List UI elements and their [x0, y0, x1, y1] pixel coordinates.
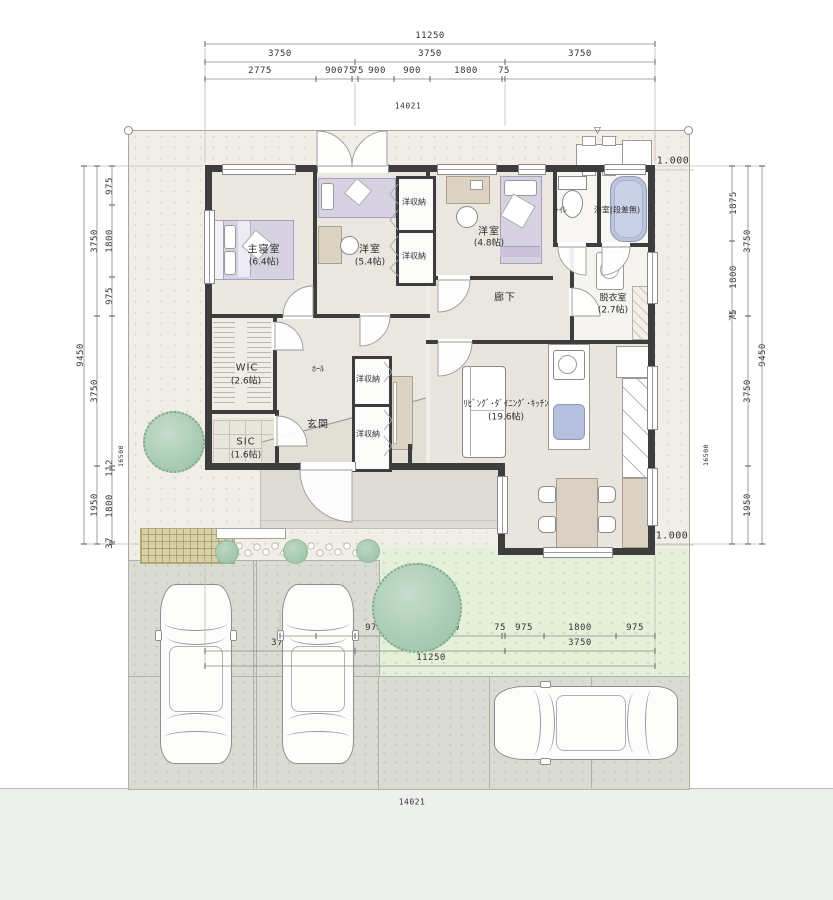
- parked-car: [282, 584, 354, 764]
- car-trunk-line: [645, 690, 658, 756]
- room-label-bath: 浴室(段差無): [594, 205, 640, 216]
- sliding-door-garden: [543, 547, 613, 558]
- door-gap: [558, 242, 586, 248]
- dim-right-upper: 1800: [729, 265, 739, 289]
- dim-right-mid: 1950: [743, 493, 753, 517]
- car-roof: [291, 646, 345, 712]
- dim-left-mid: 3750: [90, 229, 100, 253]
- dim-top-third: 3750: [418, 49, 442, 59]
- room-label-hall: ﾎｰﾙ: [312, 364, 324, 375]
- dim-top-detail: 900: [368, 66, 386, 76]
- door-gap: [569, 288, 575, 316]
- window-bath-top: [604, 164, 646, 175]
- parking-stall-line: [489, 676, 490, 788]
- room-label-closet: 洋収納: [356, 429, 380, 440]
- room-size-sic: (1.6帖): [231, 448, 261, 461]
- room-size-washroom: (2.7帖): [598, 303, 628, 316]
- car-mirror: [230, 630, 237, 641]
- room-label-closet: 洋収納: [356, 374, 380, 385]
- room-size-wic: (2.6帖): [231, 374, 261, 387]
- window-west48-top: [437, 164, 497, 175]
- dim-right-site: 16500: [702, 444, 710, 466]
- door-gap: [438, 339, 472, 345]
- pillow: [224, 251, 236, 275]
- dim-left-upper: 975: [105, 287, 115, 305]
- door-gap: [602, 242, 630, 248]
- car-rear-window: [627, 693, 642, 753]
- room-label-toilet: ﾄｲﾚ: [555, 205, 567, 216]
- door-gap: [360, 313, 390, 319]
- dim-left-mid: 1950: [90, 493, 100, 517]
- tree: [143, 411, 205, 473]
- door-gap-terrace: [317, 164, 389, 173]
- dining-chair: [538, 486, 556, 503]
- room-label-master: 主寝室: [248, 241, 281, 256]
- wic-hanger-rack: [213, 322, 235, 406]
- floor-corridor-nook: [553, 247, 570, 340]
- parked-car-horizontal-wrap: [494, 686, 678, 760]
- desk-item: [470, 180, 483, 190]
- shoe-cabinet-handle: [393, 382, 397, 444]
- washbasin-bowl: [600, 260, 619, 279]
- car-mirror: [352, 630, 359, 641]
- door-gap: [438, 275, 470, 281]
- car-roof: [556, 695, 626, 751]
- dim-right-total: 9450: [758, 343, 768, 367]
- dim-top-detail: 1800: [454, 66, 478, 76]
- dining-chair: [598, 516, 616, 533]
- window-master-top: [222, 164, 296, 175]
- dim-top-total: 11250: [415, 31, 445, 41]
- kitchen-stove: [553, 404, 585, 440]
- door-gap: [283, 313, 313, 319]
- dim-left-lower: 37: [105, 537, 115, 549]
- dim-left-upper: 1800: [105, 229, 115, 253]
- window-master-left: [204, 210, 215, 284]
- window-ldk-west: [497, 476, 508, 534]
- window-ldk-right: [647, 366, 658, 430]
- car-roof: [169, 646, 223, 712]
- car-windshield: [538, 693, 555, 753]
- bush: [356, 539, 380, 563]
- parked-car: [160, 584, 232, 764]
- room-label-wic: WIC: [236, 363, 259, 374]
- dining-chair: [538, 516, 556, 533]
- door-gap: [274, 416, 280, 446]
- room-size-west48: (4.8帖): [474, 236, 504, 249]
- toilet-tank: [558, 176, 587, 190]
- dim-left-mid: 3750: [90, 379, 100, 403]
- porch-step-edge: [260, 520, 498, 521]
- entry-door-gap: [300, 462, 356, 471]
- level-label-bottom: 1.000: [656, 531, 689, 542]
- site-corner-marker: [124, 126, 133, 135]
- wall-bedroom-divider: [313, 172, 317, 314]
- outdoor-chair: [582, 136, 596, 146]
- car-rear-window: [167, 713, 225, 728]
- room-size-ldk: (19.6帖): [488, 410, 524, 423]
- dim-bottom-total: 11250: [416, 653, 446, 663]
- dim-top-detail: 75: [352, 66, 364, 76]
- room-size-master: (6.4帖): [249, 255, 279, 268]
- car-mirror: [277, 630, 284, 641]
- dim-left-lower: 1800: [105, 494, 115, 518]
- car-trunk-line: [286, 731, 350, 744]
- garden-bench: [216, 528, 286, 539]
- car-mirror: [155, 630, 162, 641]
- room-label-closet: 洋収納: [402, 197, 426, 208]
- sofa-backrest: [462, 366, 471, 456]
- dining-table: [556, 478, 598, 548]
- dim-top-third: 3750: [568, 49, 592, 59]
- bush: [283, 539, 308, 564]
- bed-foot-band: [500, 246, 540, 257]
- dim-top-third: 3750: [268, 49, 292, 59]
- dim-top-detail: 900: [403, 66, 421, 76]
- dim-right-upper: 75: [729, 309, 739, 321]
- dim-left-total: 9450: [76, 343, 86, 367]
- wall-wic-south: [205, 410, 279, 414]
- dim-bottom-detail: 975: [515, 623, 533, 633]
- window-washroom-right: [647, 252, 658, 304]
- tree: [372, 563, 462, 653]
- dim-bottom-detail: 75: [494, 623, 506, 633]
- car-rear-window: [289, 713, 347, 728]
- outdoor-chair: [602, 136, 616, 146]
- car-windshield: [167, 628, 225, 645]
- dim-bottom-third: 3750: [568, 638, 592, 648]
- pillow: [224, 225, 236, 249]
- room-size-west54: (5.4帖): [355, 255, 385, 268]
- level-marker-triangle: ▽: [594, 126, 602, 136]
- site-corner-marker: [684, 126, 693, 135]
- dim-top-detail: 75: [498, 66, 510, 76]
- floor-plan-canvas: ▽: [0, 0, 833, 900]
- wall-bedrooms-hall: [205, 314, 430, 318]
- bush: [215, 540, 239, 564]
- kitchen-sink-basin: [558, 355, 577, 374]
- room-label-sic: SIC: [236, 437, 255, 448]
- dim-right-mid: 3750: [743, 379, 753, 403]
- pillow: [504, 180, 537, 196]
- dim-top-detail: 2775: [248, 66, 272, 76]
- dim-site-width-bottom: 14021: [399, 798, 426, 807]
- car-mirror: [540, 681, 551, 688]
- window-kitchen-top: [518, 164, 546, 175]
- room-label-corridor: 廊下: [494, 289, 516, 304]
- dim-site-width-top: 14021: [395, 102, 422, 111]
- chair: [456, 206, 478, 228]
- dim-left-lower: 112: [105, 459, 115, 477]
- desk: [446, 176, 490, 204]
- room-label-genkan: 玄関: [307, 416, 329, 431]
- pillow: [321, 183, 334, 210]
- room-label-ldk: ﾘﾋﾞﾝｸﾞ･ﾀﾞｲﾆﾝｸﾞ･ｷｯﾁﾝ: [463, 397, 549, 410]
- chair: [340, 236, 359, 255]
- car-mirror: [540, 758, 551, 765]
- wall-genkan-stub: [408, 444, 412, 470]
- car-windshield: [289, 628, 347, 645]
- dim-top-detail: 900: [325, 66, 343, 76]
- parking-stall-line: [256, 560, 257, 788]
- desk: [318, 226, 342, 264]
- parking-stall-line: [253, 560, 254, 788]
- dim-left-site: 16500: [117, 445, 125, 467]
- dim-left-upper: 975: [105, 177, 115, 195]
- door-gap: [272, 322, 278, 350]
- room-label-west54: 洋室: [359, 241, 381, 256]
- refrigerator: [616, 346, 651, 378]
- parked-car: [494, 686, 678, 760]
- dim-bottom-detail: 1800: [568, 623, 592, 633]
- car-trunk-line: [164, 731, 228, 744]
- window-ldk-right: [647, 468, 658, 526]
- dim-bottom-detail: 975: [626, 623, 644, 633]
- room-label-closet: 洋収納: [402, 251, 426, 262]
- level-label-top: 1.000: [657, 156, 690, 167]
- dim-right-upper: 1875: [729, 191, 739, 215]
- dim-right-mid: 3750: [743, 229, 753, 253]
- dining-chair: [598, 486, 616, 503]
